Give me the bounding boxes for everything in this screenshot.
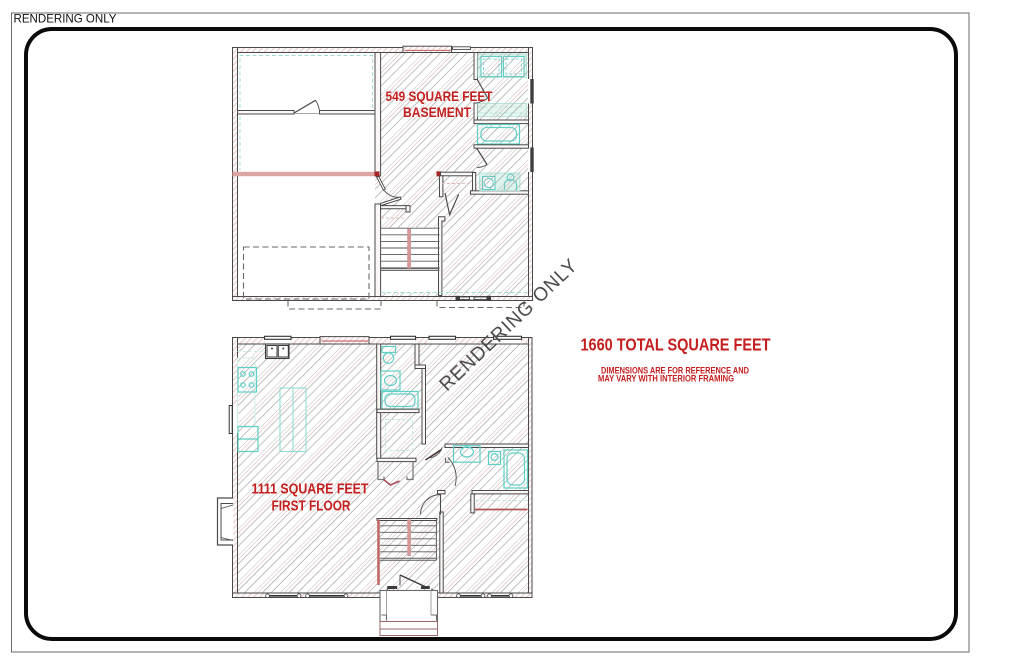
svg-text:FIRST FLOOR: FIRST FLOOR [272,499,351,515]
svg-text:RENDERING ONLY: RENDERING ONLY [14,12,117,26]
svg-text:549 SQUARE FEET: 549 SQUARE FEET [386,88,493,104]
svg-text:MAY VARY WITH INTERIOR FRAMING: MAY VARY WITH INTERIOR FRAMING [598,374,734,385]
svg-text:BASEMENT: BASEMENT [403,104,471,120]
svg-text:1111 SQUARE FEET: 1111 SQUARE FEET [252,482,369,498]
svg-text:1660 TOTAL SQUARE FEET: 1660 TOTAL SQUARE FEET [581,335,771,355]
